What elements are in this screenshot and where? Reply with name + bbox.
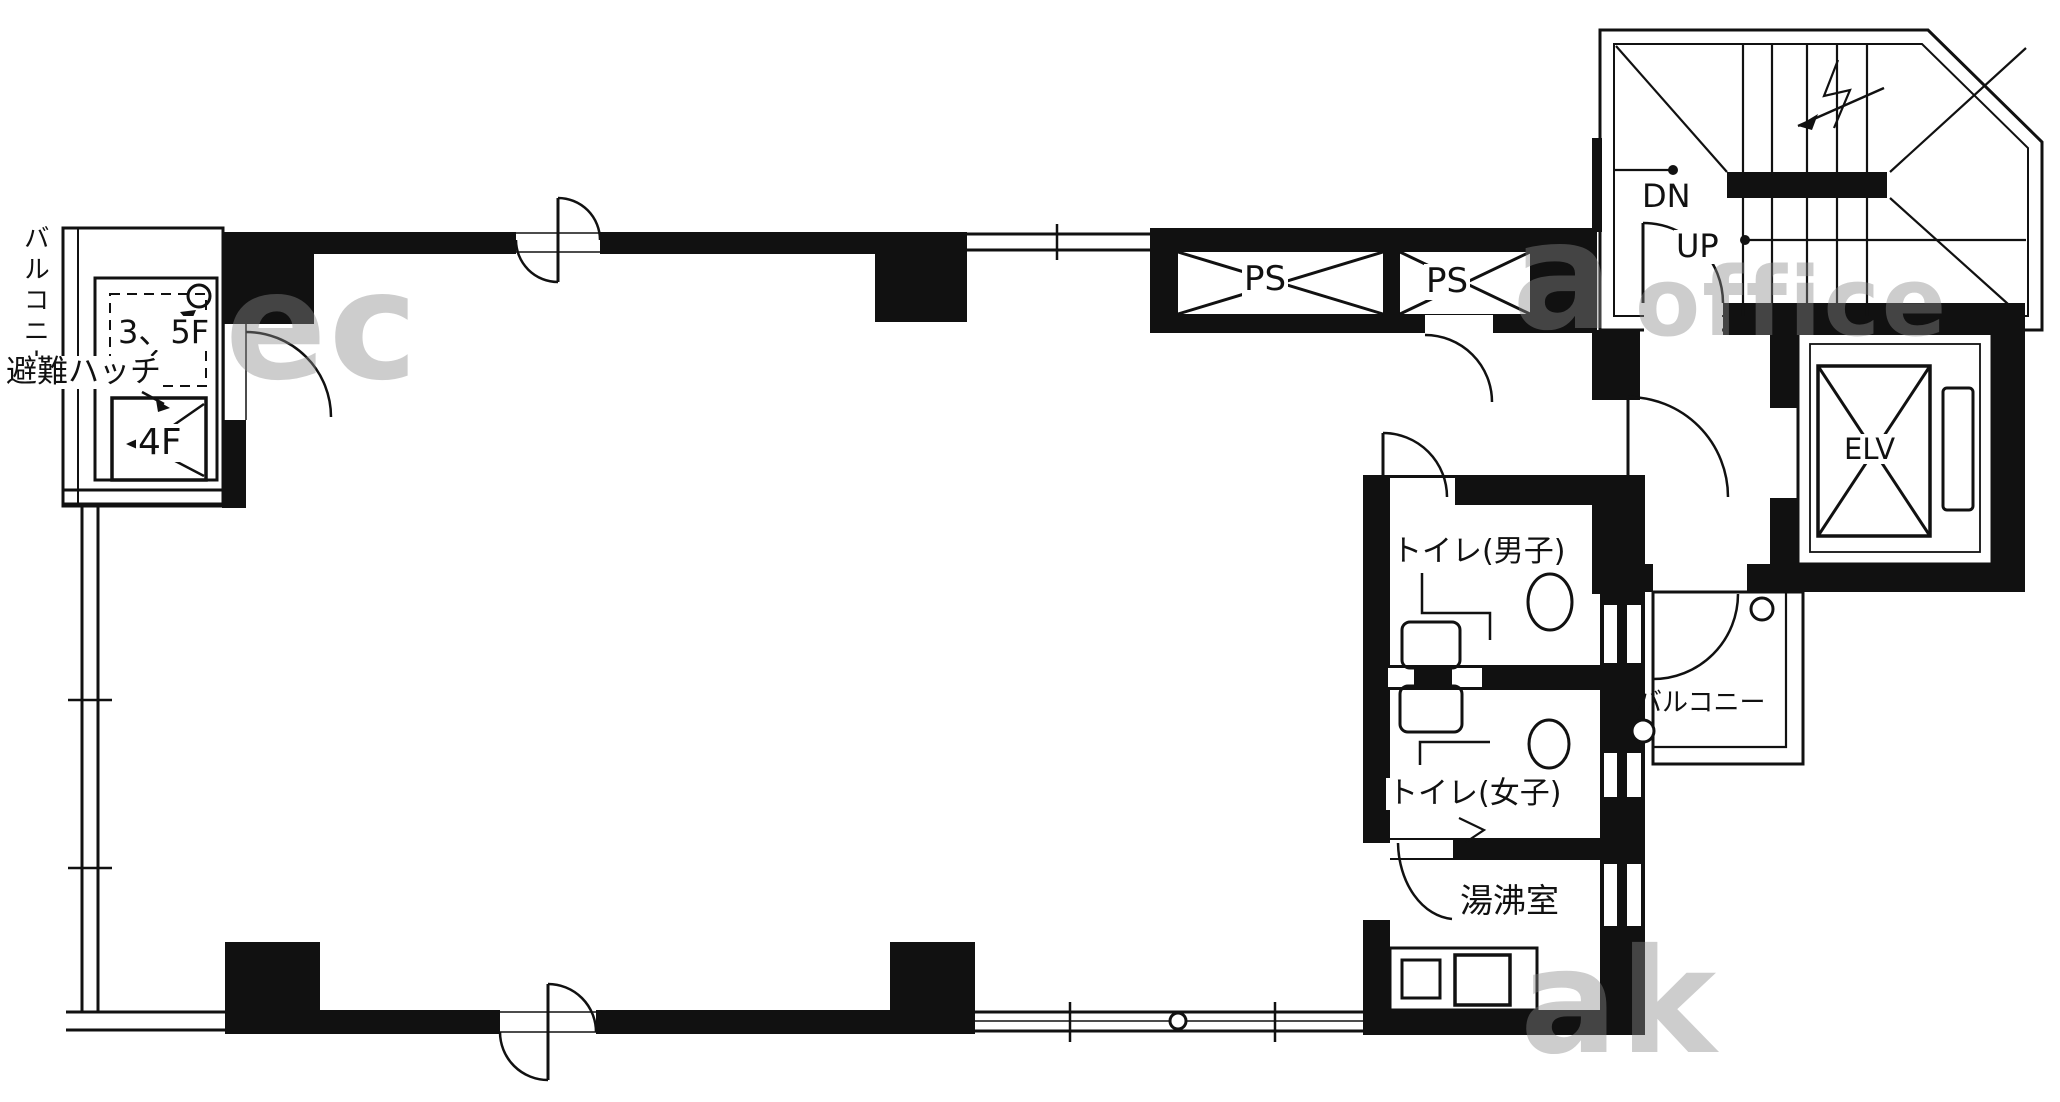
evacuation-hatch-label: 避難ハッチ (4, 356, 163, 389)
ps1-label: PS (1242, 262, 1288, 298)
window-bottom-wall (975, 1002, 1365, 1042)
kitchenette-label: 湯沸室 (1458, 884, 1561, 919)
door-ps (1425, 335, 1492, 402)
window-left-wall (66, 504, 230, 1030)
window-mullions (1617, 605, 1627, 926)
toilet-icon (1528, 574, 1572, 630)
wall-corner-topleft (222, 232, 314, 324)
drain-icon (188, 285, 210, 307)
balcony-right-outline (1632, 592, 1803, 764)
balcony-right-label: バルコニー (1634, 690, 1767, 717)
sink-icon (1402, 622, 1460, 668)
linework-layer (63, 30, 2042, 1080)
sink-icon (1400, 686, 1462, 732)
window-top-wall (967, 224, 1150, 260)
hatch-upper-floor-label: 3、5F (116, 316, 211, 350)
kitchenette-fixtures (1390, 843, 1537, 1010)
floor-plan: ec a office ak バルコニー 避難ハッチ 3、5F 4F PS PS… (0, 0, 2060, 1102)
stairs-dn-label: DN (1640, 180, 1693, 214)
toilet-men-label: トイレ(男子) (1390, 536, 1567, 568)
ps2-label: PS (1424, 264, 1470, 300)
hatch-lower-floor-label: 4F (136, 424, 184, 462)
walls-layer (222, 138, 2025, 1035)
door-bottom-double (500, 984, 596, 1080)
floor-plan-drawing (0, 0, 2060, 1102)
window-latch-icon (1170, 1013, 1186, 1029)
drain-icon (1632, 720, 1654, 742)
wall-column-top (875, 232, 967, 322)
door-balcony-left (224, 324, 331, 420)
wall-column-bottom-right (890, 942, 975, 1034)
door-top-double (516, 198, 600, 282)
wall-column-bottom-left (225, 942, 320, 1034)
drain-icon (1751, 598, 1773, 620)
toilet-women-fixtures (1400, 686, 1569, 842)
stairs-up-label: UP (1674, 230, 1721, 264)
elevator-counterweight (1943, 388, 1973, 510)
toilet-icon (1529, 720, 1569, 768)
openings-layer (1178, 252, 1641, 926)
door-balcony-right (1653, 594, 1738, 679)
toilet-women-label: トイレ(女子) (1386, 778, 1563, 810)
elevator-label: ELV (1842, 434, 1897, 464)
stair-landing-wall (1727, 172, 1887, 198)
